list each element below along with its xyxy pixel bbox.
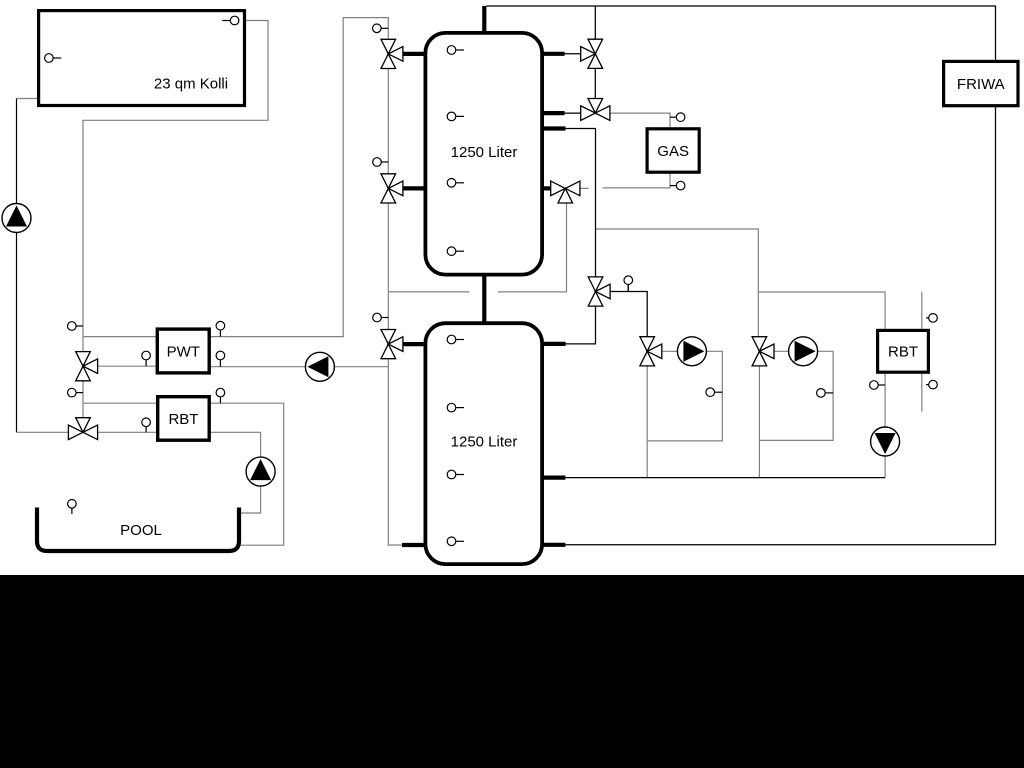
svg-text:POOL: POOL xyxy=(120,522,162,539)
svg-text:PWT: PWT xyxy=(167,343,200,360)
svg-text:23 qm Kolli: 23 qm Kolli xyxy=(154,75,228,92)
svg-text:1250 Liter: 1250 Liter xyxy=(451,434,518,451)
svg-text:FRIWA: FRIWA xyxy=(957,76,1005,93)
svg-text:GAS: GAS xyxy=(657,143,689,160)
svg-text:RBT: RBT xyxy=(888,344,918,361)
svg-text:RBT: RBT xyxy=(168,411,198,428)
svg-text:1250 Liter: 1250 Liter xyxy=(451,144,518,161)
